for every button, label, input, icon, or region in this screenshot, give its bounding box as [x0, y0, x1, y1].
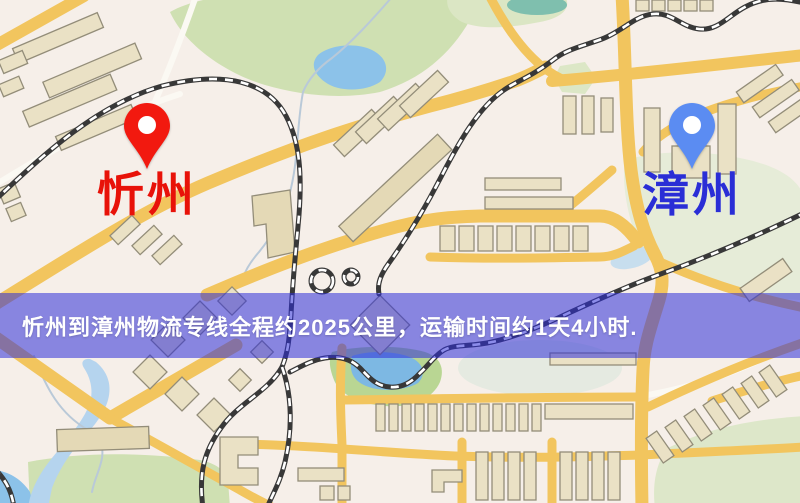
- destination-label: 漳州: [642, 171, 742, 220]
- map-background: [0, 0, 800, 503]
- destination-marker[interactable]: 漳州: [667, 101, 717, 171]
- destination-pin-icon: [667, 101, 717, 171]
- origin-label: 忻州: [97, 171, 197, 220]
- origin-pin-icon: [122, 101, 172, 171]
- route-info-banner: 忻州到漳州物流专线全程约2025公里，运输时间约1天4小时.: [0, 293, 800, 358]
- map-view[interactable]: 忻州 漳州 忻州到漳州物流专线全程约2025公里，运输时间约1天4小时.: [0, 0, 800, 503]
- origin-marker[interactable]: 忻州: [122, 101, 172, 171]
- route-info-text: 忻州到漳州物流专线全程约2025公里，运输时间约1天4小时.: [22, 310, 638, 342]
